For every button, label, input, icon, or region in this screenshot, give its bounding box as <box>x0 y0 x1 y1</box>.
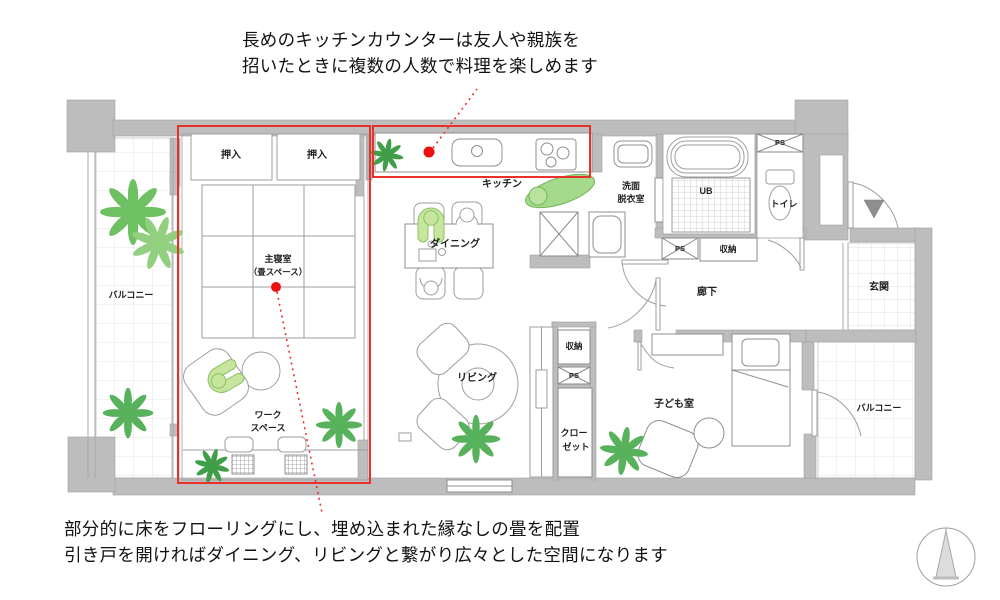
label-washroom-1: 洗面 <box>622 182 640 191</box>
label-closet-1: クロー <box>560 429 587 438</box>
label-balcony-left: バルコニー <box>109 291 154 300</box>
label-workspace-2: スペース <box>251 424 286 433</box>
callout-dot-bedroom <box>271 282 281 292</box>
label-ps-top: PS <box>775 139 785 147</box>
compass-icon <box>917 528 975 586</box>
label-hallway: 廊下 <box>697 288 717 298</box>
annotation-tatami-line1: 部分的に床をフローリングにし、埋め込まれた縁なしの畳を配置 <box>64 516 668 542</box>
toilet-room <box>757 152 803 238</box>
shaft-box <box>540 212 578 256</box>
annotation-tatami-line2: 引き戸を開ければダイニング、リビングと繋がり広々とした空間になります <box>64 542 668 568</box>
label-main-bedroom-sub: （畳スペース） <box>249 268 307 277</box>
annotation-kitchen-line2: 招いたときに複数の人数で料理を楽しめます <box>242 53 598 79</box>
entrance-arrow-icon <box>864 200 884 218</box>
label-oshiire-left: 押入 <box>221 151 241 161</box>
label-balcony-right: バルコニー <box>857 404 902 413</box>
label-living: リビング <box>457 374 497 384</box>
living-set <box>399 319 518 492</box>
label-storage-hall: 収納 <box>719 245 736 254</box>
label-kids-room: 子ども室 <box>654 400 694 410</box>
annotation-kitchen-line1: 長めのキッチンカウンターは友人や親族を <box>242 27 598 53</box>
label-ub: UB <box>700 187 713 196</box>
floor-plan-page: 押入 押入 主寝室 （畳スペース） バルコニー キッチン ダイニング 洗面 脱衣… <box>0 0 1000 600</box>
label-ps-center: PS <box>569 372 579 380</box>
label-washroom-2: 脱衣室 <box>617 195 644 204</box>
callout-dot-kitchen <box>424 147 435 158</box>
workspace-monitor <box>285 455 307 474</box>
floor-plan-linework <box>0 0 1000 600</box>
unit-bath <box>663 134 755 234</box>
annotation-kitchen: 長めのキッチンカウンターは友人や親族を 招いたときに複数の人数で料理を楽しめます <box>242 27 598 79</box>
workspace-monitor <box>232 455 254 474</box>
label-oshiire-right: 押入 <box>307 151 327 161</box>
storage-column <box>530 327 592 477</box>
label-main-bedroom: 主寝室 <box>264 255 291 264</box>
label-toilet: トイレ <box>770 200 797 209</box>
annotation-tatami: 部分的に床をフローリングにし、埋め込まれた縁なしの畳を配置 引き戸を開ければダイ… <box>64 516 668 568</box>
washroom-ub-door <box>655 178 663 222</box>
kitchen-plant-pot <box>529 187 547 205</box>
dining-set <box>405 202 493 299</box>
meter-box <box>820 155 843 225</box>
label-closet-2: ゼット <box>562 443 589 452</box>
label-ps-hall: PS <box>675 245 685 253</box>
kitchen-counter <box>375 133 592 172</box>
label-kitchen: キッチン <box>482 180 522 190</box>
label-dining: ダイニング <box>430 240 480 250</box>
label-storage-center: 収納 <box>565 342 582 351</box>
label-workspace-1: ワーク <box>254 411 281 420</box>
label-entrance: 玄関 <box>869 283 889 293</box>
